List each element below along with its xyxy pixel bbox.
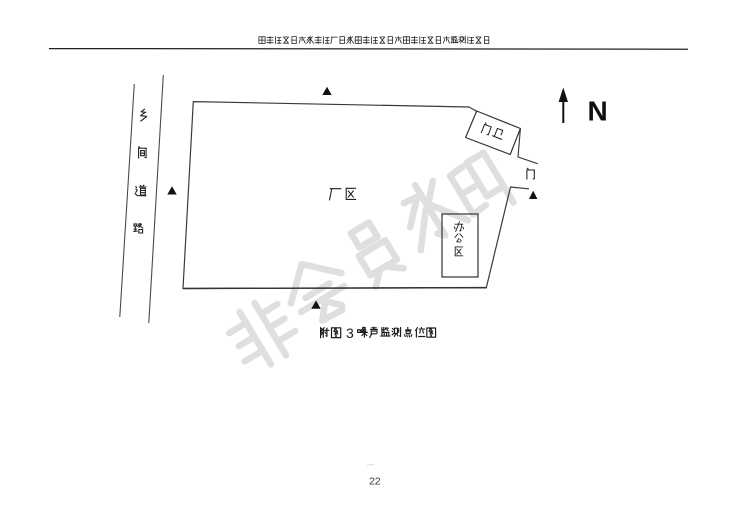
svg-text:3: 3 [346,325,354,341]
svg-text:N: N [588,96,608,127]
svg-text:22: 22 [369,476,381,488]
